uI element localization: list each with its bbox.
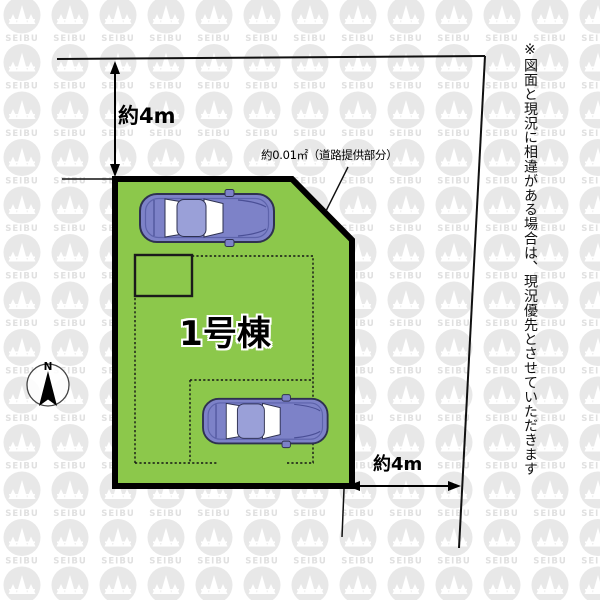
plan-layer: N: [0, 0, 600, 600]
site-plan-canvas: SEIBU: [0, 0, 600, 600]
dimension-label-top: 約4m: [118, 100, 176, 130]
car-1: [140, 190, 274, 247]
porch-rectangle: [135, 255, 192, 296]
road-boundary-right: [459, 56, 485, 548]
road-boundary-top: [57, 56, 485, 59]
disclaimer-vertical-text: ※図面と現況に相違がある場合は、現況優先とさせていただきます: [520, 42, 540, 522]
car-2: [203, 395, 328, 448]
road-note-leader-line: [326, 167, 348, 211]
dimension-label-bottom: 約4m: [373, 450, 422, 476]
building-name-label: 1号棟: [159, 306, 291, 355]
boundary-extension-bottom: [342, 489, 344, 537]
dimension-arrow-bottom: [347, 481, 461, 491]
compass-north-label: N: [44, 361, 53, 373]
road-provision-note: 約0.01㎡（道路提供部分）: [261, 147, 397, 163]
north-compass: N: [27, 361, 69, 406]
